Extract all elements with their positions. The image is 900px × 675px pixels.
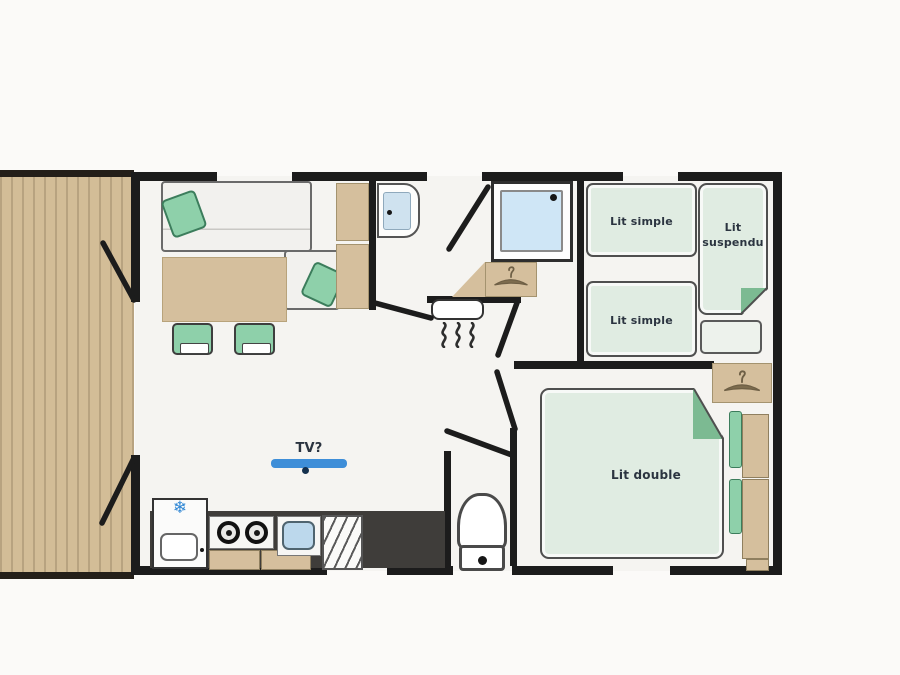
fridge: ❄ (152, 498, 208, 569)
tv-screen (271, 459, 347, 468)
radiator (431, 299, 484, 320)
sink (277, 516, 321, 556)
toilet-tank (459, 545, 505, 571)
suspended-bed-label-1: Lit (700, 221, 766, 234)
single-bed-1: Lit simple (586, 183, 697, 257)
hanger-icon (718, 369, 766, 397)
tv-label: TV? (273, 441, 345, 456)
wall-kidsroom-west (577, 181, 584, 368)
burner-right-center (254, 530, 260, 536)
microwave-button (200, 548, 204, 552)
wall-bedroom-north (514, 361, 714, 369)
kitchen-cabinet-1 (209, 550, 260, 570)
floorplan-canvas: TV? ❄ (0, 0, 900, 675)
double-bed-label: Lit double (542, 468, 722, 482)
storage-cabinet-lower (336, 244, 369, 309)
bedside-step (746, 559, 769, 571)
wall-living-bathroom (369, 181, 376, 310)
stove (209, 516, 274, 549)
wall-wc-west (444, 451, 451, 566)
single-bed-2: Lit simple (586, 281, 697, 357)
exterior-wall-left-lower (131, 455, 140, 575)
deck-bottom-border (0, 572, 134, 579)
sink-basin (282, 521, 315, 550)
suspended-bed-label-2: suspendu (700, 236, 766, 249)
bed-cushion-2 (729, 479, 742, 534)
exterior-wall-bottom-3 (512, 566, 613, 575)
dining-chair-1 (172, 323, 213, 355)
single-bed-2-label: Lit simple (588, 314, 695, 327)
bunk-ladder-box (700, 320, 762, 354)
exterior-wall-top-4 (678, 172, 782, 181)
toilet-bowl (457, 493, 507, 553)
burner-left-center (226, 530, 232, 536)
snowflake-icon: ❄ (154, 498, 206, 518)
tv-stand-dot (302, 467, 309, 474)
washbasin-drain (387, 210, 392, 215)
storage-cabinet-upper (336, 183, 369, 241)
dish-drainer (322, 515, 363, 570)
shower-drain (550, 194, 557, 201)
bathroom-wardrobe (485, 262, 537, 297)
exterior-wall-right (773, 172, 782, 575)
bedside-bench-1 (742, 414, 769, 478)
terrace-deck (0, 177, 134, 572)
washbasin (377, 183, 420, 238)
shower (491, 181, 573, 262)
toilet-flush-button (478, 556, 487, 565)
heat-squiggles-icon (438, 322, 480, 348)
exterior-wall-top-3 (482, 172, 623, 181)
microwave (160, 533, 198, 561)
hanger-icon (489, 265, 533, 291)
chair-seat-slot (242, 343, 271, 354)
bedroom-wardrobe (712, 363, 772, 403)
dining-chair-2 (234, 323, 275, 355)
exterior-wall-top-2 (292, 172, 427, 181)
bedside-bench-2 (742, 479, 769, 559)
dining-table (162, 257, 287, 322)
chair-seat-slot (180, 343, 209, 354)
deck-top-border (0, 170, 134, 177)
exterior-wall-left-upper (131, 172, 140, 302)
single-bed-1-label: Lit simple (588, 215, 695, 228)
wall-wc-east (510, 428, 517, 566)
exterior-wall-top-1 (131, 172, 217, 181)
bed-cushion-1 (729, 411, 742, 468)
